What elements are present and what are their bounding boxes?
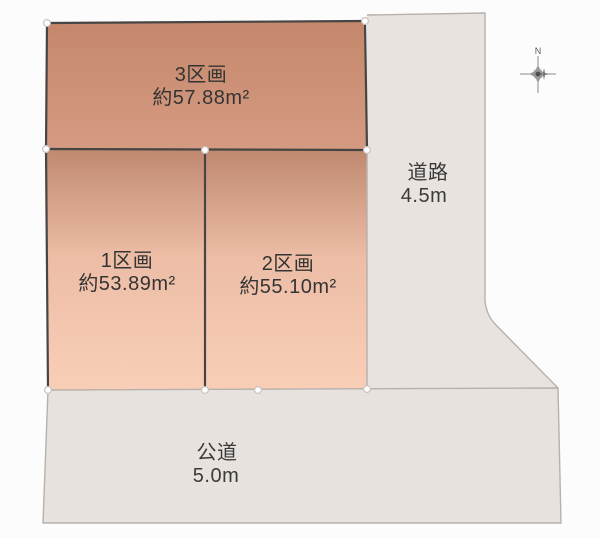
vertex-marker: [364, 147, 371, 154]
vertex-marker: [45, 387, 52, 394]
parcel-2-label: 2区画: [262, 253, 315, 275]
vertex-marker: [44, 20, 51, 27]
vertex-marker: [202, 147, 209, 154]
parcel-2-area: 約55.10m²: [239, 275, 336, 298]
parcel-3-label: 3区画: [175, 64, 228, 86]
vertex-marker: [364, 386, 371, 393]
public-road-width-label: 5.0m: [193, 465, 239, 487]
public-road-label: 公道: [197, 441, 238, 464]
vertex-marker: [202, 387, 209, 394]
parcel3-left-edge: [46, 23, 47, 149]
parcel-1-label: 1区画: [101, 250, 154, 272]
public-road-region: [43, 388, 561, 523]
side-road-width-label: 4.5m: [401, 185, 447, 207]
vertex-marker: [362, 18, 369, 25]
parcel-1-area: 約53.89m²: [78, 272, 175, 295]
lot-map-canvas: 3区画 約57.88m² 1区画 約53.89m² 2区画 約55.10m² 道…: [0, 0, 600, 538]
compass-north-label: N: [535, 46, 542, 56]
vertex-marker: [43, 146, 50, 153]
vertex-marker: [255, 387, 262, 394]
side-road-label: 道路: [408, 161, 449, 184]
lot-map-diagram: 3区画 約57.88m² 1区画 約53.89m² 2区画 約55.10m² 道…: [0, 0, 600, 538]
parcel-3-area: 約57.88m²: [152, 86, 249, 109]
